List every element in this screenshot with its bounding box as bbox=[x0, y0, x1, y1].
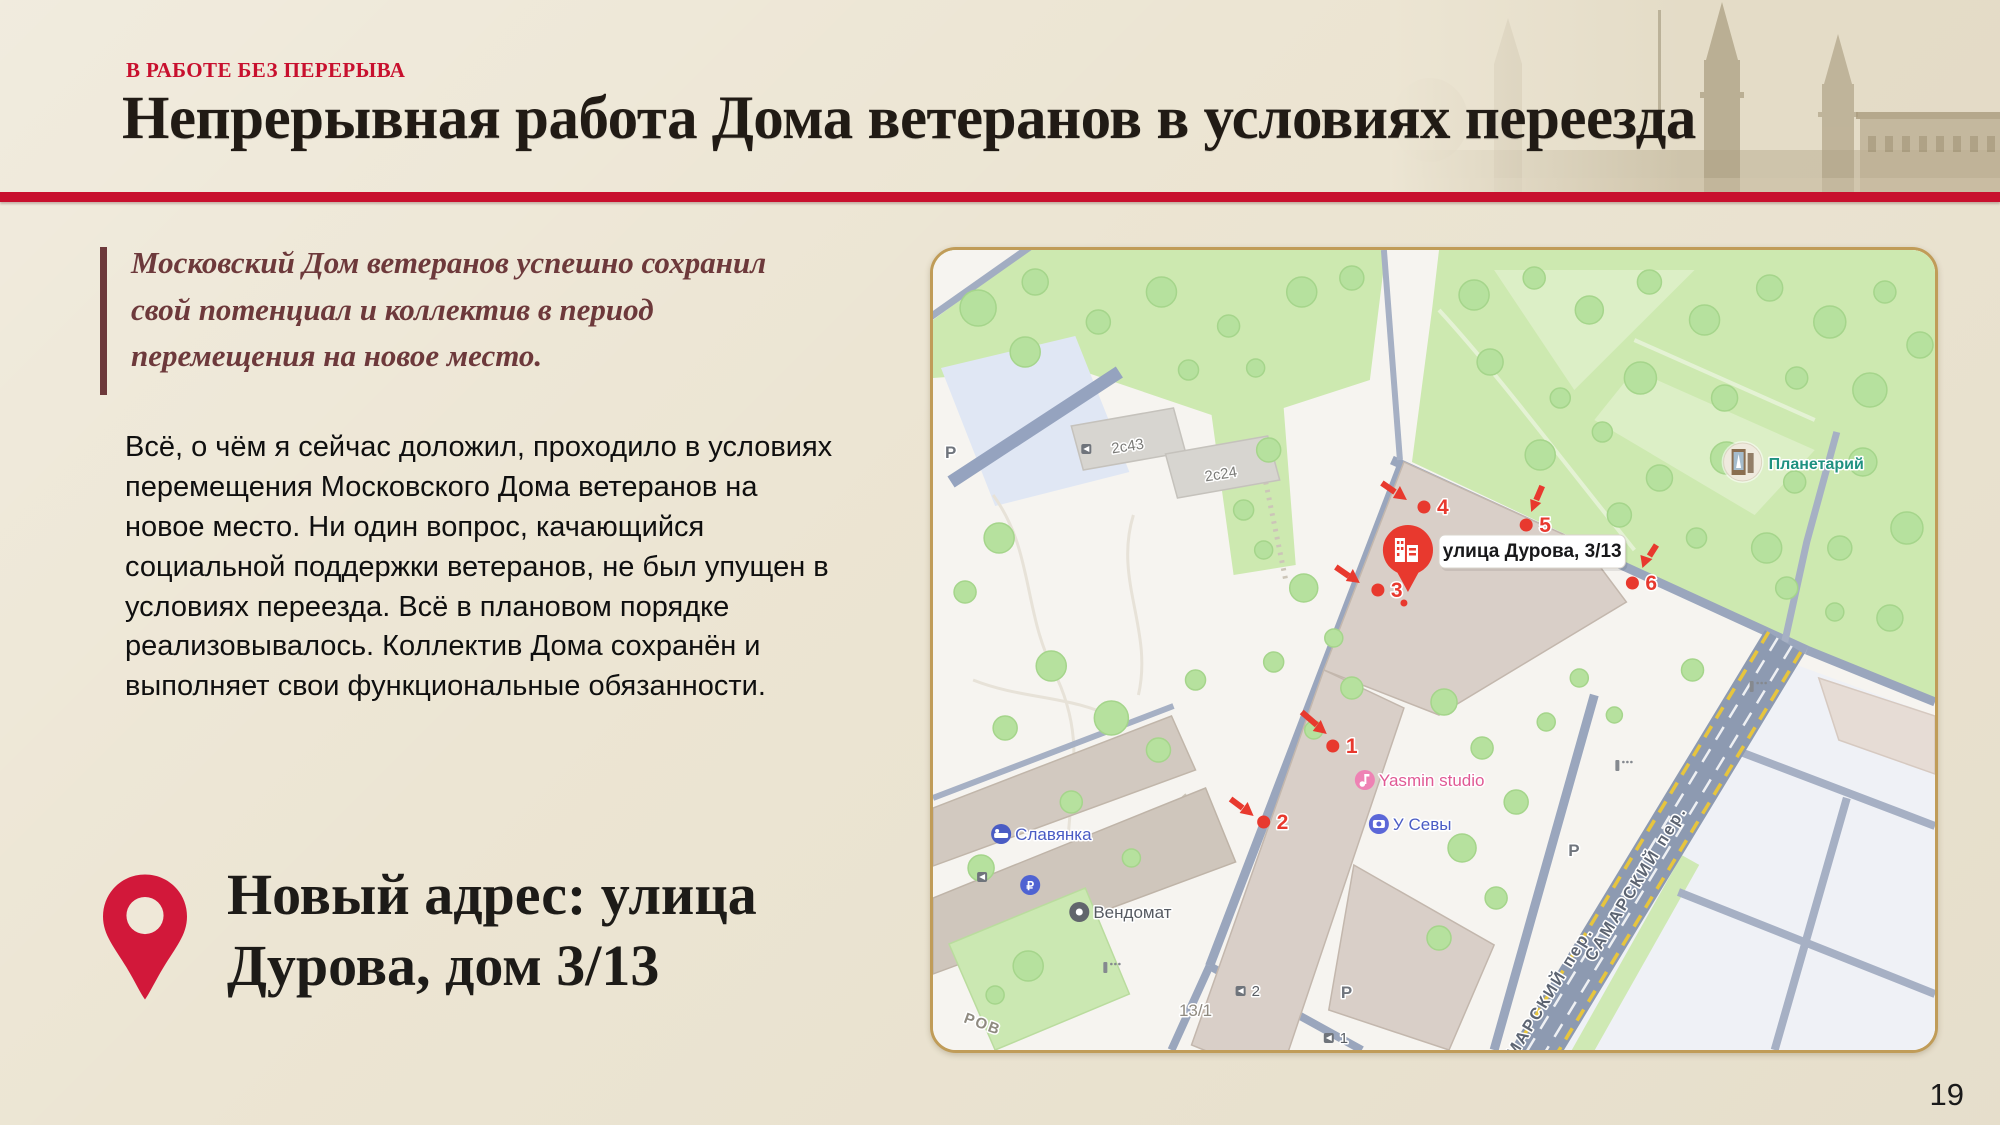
location-pin-icon bbox=[103, 874, 187, 1000]
slide-title: Непрерывная работа Дома ветеранов в усло… bbox=[122, 84, 1696, 154]
poi-hotel: Славянка bbox=[991, 824, 1092, 844]
svg-text:1: 1 bbox=[1346, 735, 1358, 758]
svg-text:3: 3 bbox=[1391, 579, 1403, 602]
quote-text: Московский Дом ветеранов успешно сохрани… bbox=[131, 240, 779, 380]
address-block: Новый адрес: улица Дурова, дом 3/13 bbox=[103, 860, 757, 1002]
svg-text:4: 4 bbox=[1437, 496, 1449, 519]
address-line2: Дурова, дом 3/13 bbox=[227, 933, 659, 998]
svg-text:У Севы: У Севы bbox=[1393, 815, 1452, 834]
parking-icon: Р bbox=[1341, 983, 1352, 1002]
svg-text:6: 6 bbox=[1645, 572, 1657, 595]
address-text: Новый адрес: улица Дурова, дом 3/13 bbox=[227, 860, 757, 1002]
svg-text:Yasmin studio: Yasmin studio bbox=[1379, 771, 1485, 790]
poi-vending: Вендомат bbox=[1069, 902, 1171, 922]
svg-text:Планетарий: Планетарий bbox=[1769, 456, 1864, 473]
svg-text:Вендомат: Вендомат bbox=[1093, 903, 1171, 922]
map-image: САМАРСКИЙ пер. МАРСКИЙ пер. РОВ 2с43 2с2… bbox=[930, 247, 1938, 1053]
poi-photo-shop: У Севы bbox=[1369, 814, 1452, 834]
paid-parking-icon: ₽ bbox=[1020, 875, 1040, 895]
svg-text:улица Дурова, 3/13: улица Дурова, 3/13 bbox=[1443, 541, 1622, 562]
svg-text:2: 2 bbox=[1277, 811, 1289, 834]
accent-divider bbox=[0, 192, 2000, 202]
presentation-slide: В РАБОТЕ БЕЗ ПЕРЕРЫВА Непрерывная работа… bbox=[0, 0, 2000, 1125]
quote-bar bbox=[100, 247, 107, 395]
page-number: 19 bbox=[1930, 1077, 1964, 1113]
entrance-number: 1 bbox=[1340, 1030, 1348, 1047]
slide-kicker: В РАБОТЕ БЕЗ ПЕРЕРЫВА bbox=[126, 58, 405, 83]
parking-icon: Р bbox=[945, 443, 956, 462]
pin-address-label: улица Дурова, 3/13 bbox=[1439, 535, 1627, 571]
body-paragraph: Всё, о чём я сейчас доложил, проходило в… bbox=[125, 428, 837, 707]
parking-icon: Р bbox=[1568, 841, 1579, 860]
map-art: САМАРСКИЙ пер. МАРСКИЙ пер. РОВ 2с43 2с2… bbox=[933, 250, 1935, 1050]
svg-text:5: 5 bbox=[1539, 514, 1551, 537]
entrance-number: 2 bbox=[1252, 983, 1260, 1000]
address-line1: Новый адрес: улица bbox=[227, 862, 757, 927]
building-label-13-1: 13/1 bbox=[1179, 1001, 1212, 1020]
svg-text:₽: ₽ bbox=[1026, 879, 1034, 893]
svg-text:Славянка: Славянка bbox=[1015, 825, 1092, 844]
